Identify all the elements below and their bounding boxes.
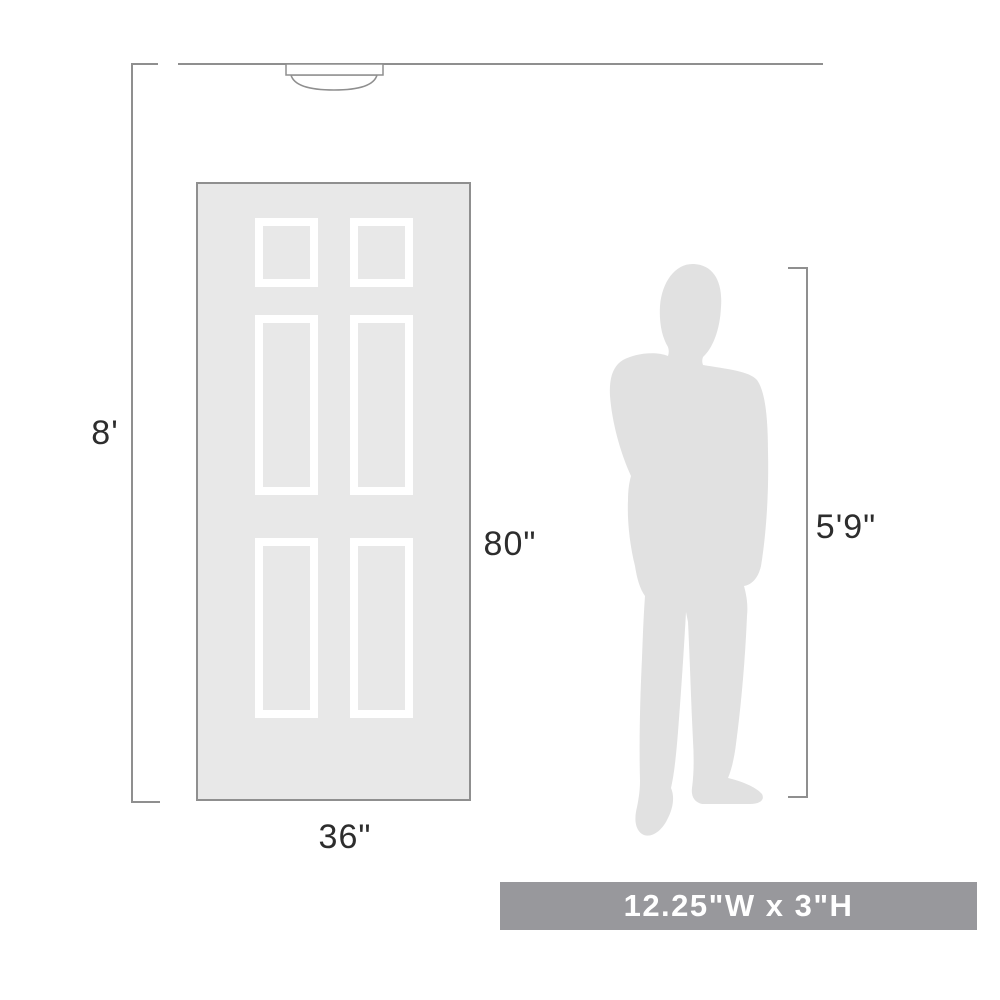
door-width-label: 36" [290, 820, 400, 854]
door-slab [197, 183, 470, 800]
product-dimensions-label: 12.25"W x 3"H [624, 888, 854, 924]
person-silhouette-icon [610, 264, 768, 836]
light-canopy [286, 64, 383, 75]
flush-mount-light-icon [286, 64, 383, 90]
door-illustration [197, 183, 470, 800]
door-height-label: 80" [455, 527, 565, 561]
ceiling-height-label: 8' [40, 416, 170, 450]
person-height-label: 5'9" [791, 510, 901, 544]
diagram-canvas [0, 0, 1000, 1000]
dimension-diagram: 8' 80" 36" 5'9" 12.25"W x 3"H [0, 0, 1000, 1000]
product-dimensions-banner: 12.25"W x 3"H [500, 882, 977, 930]
light-dome [291, 75, 377, 90]
